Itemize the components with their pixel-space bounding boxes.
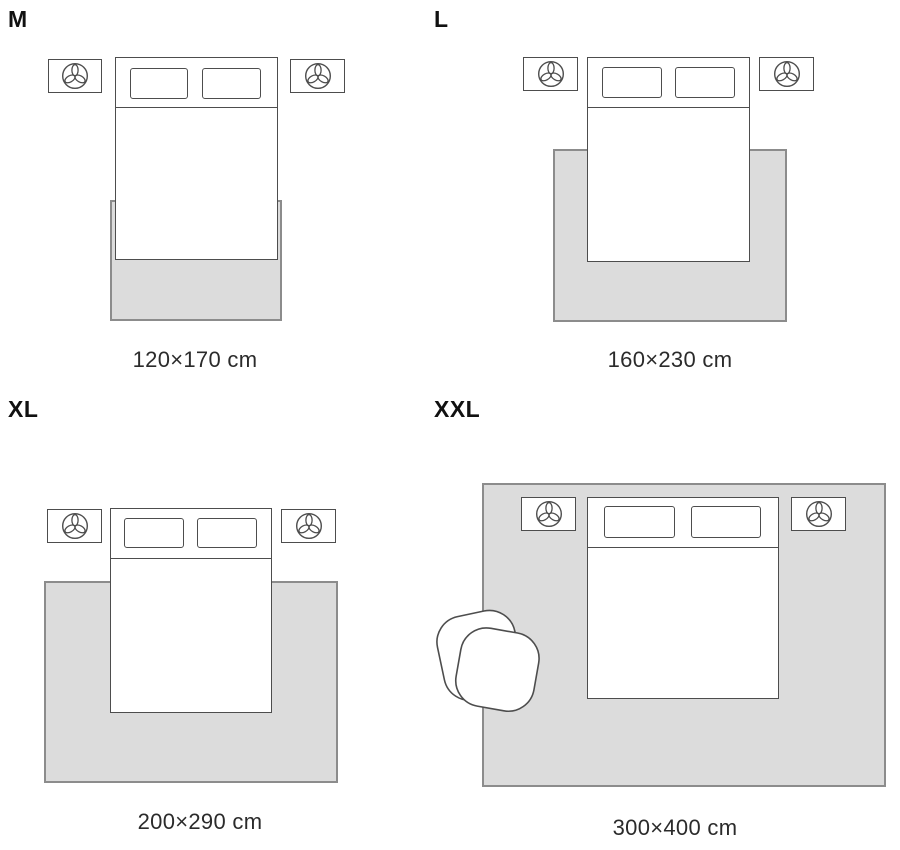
plant-icon	[534, 499, 564, 529]
size-category-label-xxl: XXL	[434, 398, 480, 421]
bed	[587, 497, 779, 699]
pillow-left	[124, 518, 184, 548]
plant-icon	[804, 499, 834, 529]
pillow-left	[130, 68, 188, 99]
armchair-icon	[433, 604, 545, 716]
bed-headboard	[116, 58, 277, 108]
nightstand-right	[759, 57, 814, 91]
rug-dimensions-xl: 200×290 cm	[90, 811, 310, 833]
size-category-label-l: L	[434, 8, 449, 31]
bed-headboard	[588, 498, 778, 548]
nightstand-right	[290, 59, 345, 93]
size-category-label-xl: XL	[8, 398, 38, 421]
nightstand-left	[48, 59, 102, 93]
rug-dimensions-m: 120×170 cm	[85, 349, 305, 371]
size-category-label-m: M	[8, 8, 28, 31]
rug-size-guide: M 120×170 cm L	[0, 0, 900, 850]
plant-icon	[294, 511, 324, 541]
nightstand-left	[47, 509, 102, 543]
plant-icon	[60, 511, 90, 541]
pillow-right	[675, 67, 735, 98]
plant-icon	[772, 59, 802, 89]
plant-icon	[60, 61, 90, 91]
nightstand-left	[523, 57, 578, 91]
bed	[115, 57, 278, 260]
nightstand-right	[281, 509, 336, 543]
bed-headboard	[111, 509, 271, 559]
pillow-left	[602, 67, 662, 98]
rug-dimensions-xxl: 300×400 cm	[565, 817, 785, 839]
plant-icon	[303, 61, 333, 91]
plant-icon	[536, 59, 566, 89]
bed-headboard	[588, 58, 749, 108]
nightstand-right	[791, 497, 846, 531]
bed	[110, 508, 272, 713]
pillow-right	[691, 506, 761, 538]
pillow-left	[604, 506, 675, 538]
rug-dimensions-l: 160×230 cm	[560, 349, 780, 371]
pillow-right	[202, 68, 261, 99]
nightstand-left	[521, 497, 576, 531]
bed	[587, 57, 750, 262]
pillow-right	[197, 518, 257, 548]
